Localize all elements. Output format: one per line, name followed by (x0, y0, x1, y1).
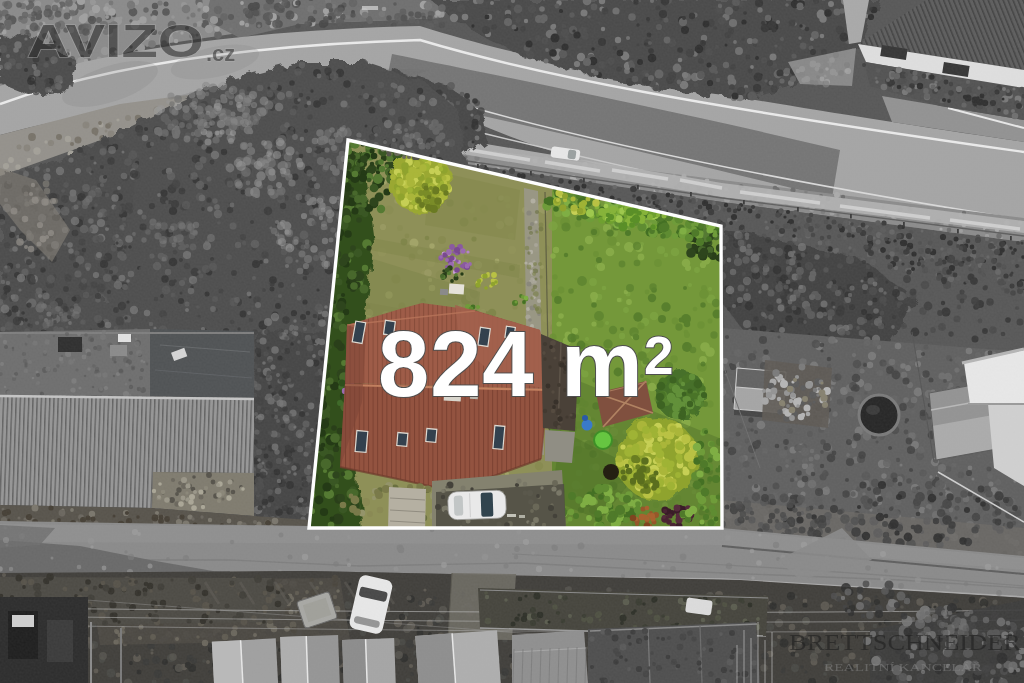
svg-text:824 m2: 824 m2 (378, 313, 674, 415)
svg-text:.cz: .cz (206, 41, 235, 66)
svg-text:AVIZO: AVIZO (27, 15, 204, 67)
svg-text:BRETTSCHNEIDER: BRETTSCHNEIDER (789, 629, 1021, 655)
svg-text:REALITNÍ KANCELÁŘ: REALITNÍ KANCELÁŘ (824, 662, 982, 673)
